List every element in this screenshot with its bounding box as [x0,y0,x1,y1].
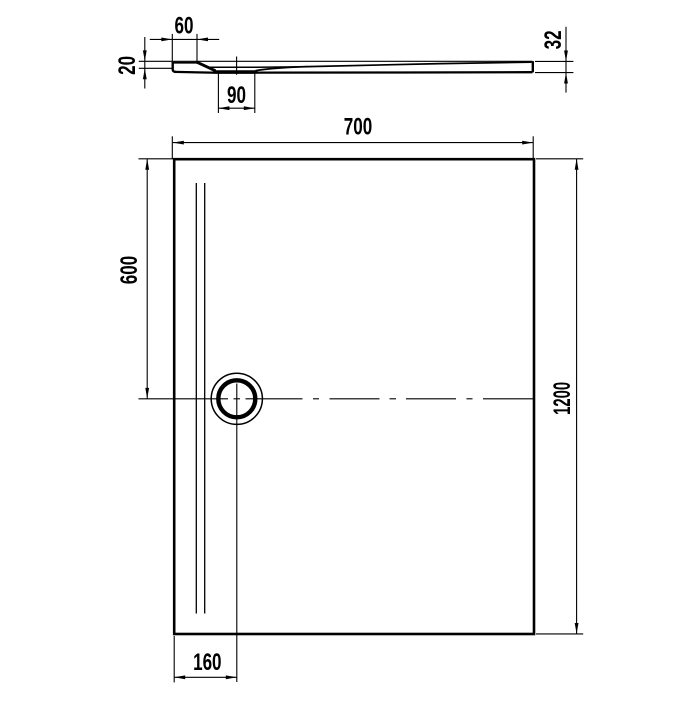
svg-text:20: 20 [114,56,141,75]
svg-text:700: 700 [344,114,372,141]
svg-text:32: 32 [540,30,567,49]
svg-text:60: 60 [175,13,194,40]
svg-text:1200: 1200 [550,382,576,415]
svg-text:160: 160 [193,649,221,676]
svg-text:600: 600 [116,256,143,284]
svg-text:90: 90 [227,82,246,109]
